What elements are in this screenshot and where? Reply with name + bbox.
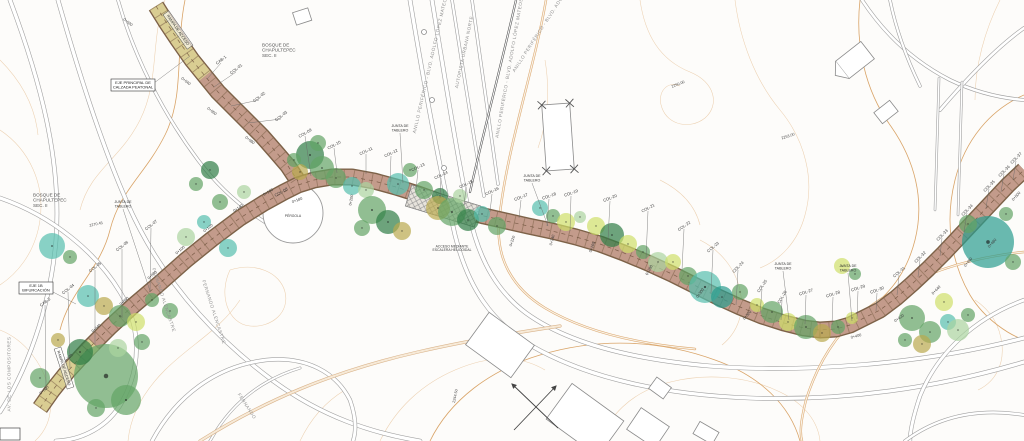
tree-center-dot [141, 341, 142, 342]
label-box-cut [0, 428, 20, 440]
tree-center-dot [293, 159, 294, 160]
building [693, 421, 719, 441]
boxed-axis-label-text: EJE PRINCIPAL DECALZADA PEATONAL [113, 80, 154, 90]
contour-elevation-label-text: 2270.45 [89, 221, 103, 228]
column-label: COL-02 [252, 90, 267, 103]
access-ramp-top [156, 6, 205, 76]
tree-center-dot [195, 183, 196, 184]
deck-joint-label: JUNTA DETABLERO [839, 264, 857, 272]
deck-joint-label-text: JUNTA DETABLERO [114, 200, 132, 208]
tree-center-dot [704, 286, 706, 288]
street-line-inner [958, 82, 962, 215]
station-label-text: 0+440 [930, 284, 942, 296]
column-label: COL-21 [640, 202, 656, 213]
tree-center-dot [467, 219, 469, 221]
column-label-text: COL-13 [410, 161, 426, 172]
column-label: COL-12 [383, 147, 399, 158]
building [627, 408, 670, 441]
column-label-text: COL-11 [359, 145, 374, 156]
tree-center-dot [317, 142, 318, 143]
deck-joint-label-text: JUNTA DETABLERO [523, 174, 541, 182]
tree-center-dot [309, 154, 311, 156]
column-label: COL-11 [359, 145, 374, 156]
contour-elevation-label: 2250.00 [671, 80, 685, 89]
column-label: COL-27 [798, 287, 814, 296]
tree-center-dot [756, 304, 757, 305]
tree-center-dot [117, 347, 118, 348]
deck-joint-label: JUNTA DETABLERO [114, 200, 132, 208]
annotation-label: ACCESO MEDIANTEESCALERA HELICOIDAL [432, 244, 471, 252]
boxed-axis-label: EJE PRINCIPAL DECALZADA PEATONAL [111, 79, 155, 91]
tree-center-dot [459, 195, 460, 196]
plan-drawing-svg: CAB-1COL-01COL-02COL-03CAB-2COL-04COL-05… [0, 0, 1024, 441]
column-label: COL-23 [706, 240, 721, 254]
column-label: COL-37 [1009, 151, 1023, 165]
street-line-inner [210, 368, 300, 441]
tree-center-dot [321, 167, 323, 169]
building [546, 383, 624, 441]
street-name-label-text: ANILLO PERIFÉRICO - BLVD. ADOLFO LÓPEZ M… [511, 0, 593, 73]
tree-center-dot [103, 305, 104, 306]
tree-center-dot [771, 311, 773, 313]
column-label: COL-24 [731, 260, 745, 274]
column-label: COL-03 [274, 109, 289, 122]
tree-center-dot [401, 230, 402, 231]
survey-cross-arrows [512, 384, 558, 430]
tree-center-dot [911, 317, 913, 319]
tree-center-dot [203, 221, 204, 222]
tree-center-dot [943, 301, 944, 302]
contour-elevation-label-text: 2250.00 [671, 80, 685, 89]
tree-center-dot [95, 407, 96, 408]
column-label: COL-07 [144, 218, 159, 231]
tree-center-dot [947, 321, 948, 322]
tree-center-dot [151, 299, 152, 300]
tree-center-dot [79, 351, 81, 353]
tree-center-dot [565, 221, 566, 222]
column-label-text: COL-04 [61, 282, 76, 295]
park-name-label-text: BOSQUE DECHAPULTEPECSEC. II [33, 192, 67, 208]
leader-line [519, 200, 521, 218]
building [293, 8, 312, 25]
street-name-label: ANILLO PERIFÉRICO - BLVD. ADOLFO LÓPEZ M… [511, 0, 593, 73]
structure-with-x-corners [537, 99, 578, 175]
tree-center-dot [1012, 261, 1013, 262]
annotation-label-text: PÉRGOLA [285, 213, 302, 218]
tree-center-dot [627, 243, 628, 244]
column-label: COL-01 [229, 62, 244, 75]
deck-joint-label-text: JUNTA DETABLERO [774, 262, 792, 270]
column-label-text: COL-18 [541, 191, 557, 201]
station-label-text: 0+060 [206, 106, 218, 117]
tree-center-dot [805, 326, 807, 328]
column-label-text: COL-12 [383, 147, 399, 158]
tree-center-dot [957, 329, 959, 331]
tree-center-dot [739, 291, 740, 292]
deck-joint-label-text: JUNTA DETABLERO [391, 124, 409, 132]
deck-joint-label: JUNTA DETABLERO [391, 124, 409, 132]
contour-elevation-label: 2253.00 [781, 132, 795, 140]
station-label: 0+040 [180, 76, 192, 87]
column-label-text: COL-02 [252, 90, 267, 103]
column-label-text: COL-24 [731, 260, 745, 274]
column-label: COL-28 [825, 289, 841, 298]
tree-center-dot [595, 225, 596, 226]
column-label: COL-17 [513, 192, 529, 202]
annotation-label-text: ACCESO MEDIANTEESCALERA HELICOIDAL [432, 244, 471, 252]
tree-center-dot [219, 201, 220, 202]
tree-center-dot [57, 339, 58, 340]
column-label-text: COL-03 [274, 109, 289, 122]
tree-center-dot [209, 169, 210, 170]
column-label-text: COL-07 [144, 218, 159, 231]
column-label-text: COL-25 [756, 278, 769, 293]
column-label-text: COL-17 [513, 192, 529, 202]
street-line [905, 412, 1024, 441]
boxed-axis-label: EJE 1BBIFURCACIÓN [19, 282, 53, 294]
column-label-text: COL-16 [484, 185, 500, 196]
tree-center-dot [243, 191, 244, 192]
tree-center-dot [552, 215, 553, 216]
tree-center-dot [185, 236, 186, 237]
tree-center-dot [39, 377, 40, 378]
column-label: COL-06 [115, 239, 130, 252]
tree-center-dot [929, 331, 931, 333]
tree-center-dot [125, 399, 127, 401]
column-label: COL-29 [850, 283, 866, 292]
street-line-inner [935, 78, 939, 210]
tree-center-dot [967, 314, 968, 315]
column-label-text: COL-06 [115, 239, 130, 252]
tree-center-dot [579, 216, 580, 217]
deck-joint-label: JUNTA DETABLERO [523, 174, 541, 182]
tree-center-dot [904, 339, 905, 340]
column-label: COL-22 [677, 219, 692, 232]
column-label: CAB-1 [215, 54, 228, 66]
column-label-text: CAB-1 [215, 54, 228, 66]
tree-center-dot [69, 256, 70, 257]
tree-center-dot [481, 213, 482, 214]
tree-center-dot [371, 209, 373, 211]
street-line [210, 368, 300, 441]
park-name-label: BOSQUE DECHAPULTEPECSEC. II [262, 42, 296, 58]
contour-elevation-label: 2244.50 [452, 389, 459, 403]
tree-center-dot [687, 275, 688, 276]
column-label: COL-18 [541, 191, 557, 201]
tree-center-dot [611, 234, 613, 236]
tree-center-dot [657, 261, 658, 262]
tree-center-dot [821, 332, 822, 333]
tree-center-dot [51, 245, 53, 247]
tree-center-dot [335, 177, 336, 178]
tree-center-dot [854, 273, 855, 274]
tree-center-dot [1005, 213, 1006, 214]
contour-elevation-label: 2270.45 [89, 221, 103, 228]
tree-center-dot [361, 227, 362, 228]
column-label: COL-16 [484, 185, 500, 196]
annotation-label: PÉRGOLA [285, 213, 302, 218]
column-label: COL-30 [869, 285, 885, 295]
station-label-text: 0+200 [347, 193, 354, 205]
tree-center-dot [496, 225, 497, 226]
tree-center-dot [967, 223, 968, 224]
tree-center-dot [135, 321, 136, 322]
column-label: COL-13 [410, 161, 426, 172]
column-label: COL-25 [756, 278, 769, 293]
building [649, 377, 672, 399]
street-name-label: FERNANDO ALENCASTRE [201, 279, 226, 344]
station-label: 0+200 [347, 193, 354, 205]
tree-center-dot [672, 261, 673, 262]
column-label-text: COL-23 [706, 240, 721, 254]
column-label: COL-20 [602, 193, 618, 203]
tree-center-dot [351, 185, 352, 186]
site-plan-frame: CAB-1COL-01COL-02COL-03CAB-2COL-04COL-05… [0, 0, 1024, 441]
station-label: 0+060 [206, 106, 218, 117]
column-label: COL-19 [563, 188, 579, 198]
street-name-label: AV. DE LOS COMPOSITORES [7, 337, 12, 412]
column-label-text: COL-01 [229, 62, 244, 75]
tree-center-dot [721, 296, 723, 298]
tree-center-dot [837, 326, 838, 327]
tree-center-dot [227, 247, 228, 248]
column-label-text: COL-20 [602, 193, 618, 203]
tree-center-dot [642, 251, 643, 252]
street-name-label-text: FERNANDO ALENCASTRE [201, 279, 226, 344]
building [466, 312, 535, 377]
tree-center-dot [104, 374, 108, 378]
column-label-text: COL-21 [640, 202, 656, 213]
station-label: 0+220 [508, 234, 516, 247]
tree-center-dot [787, 321, 788, 322]
tree-center-dot [87, 295, 89, 297]
tree-center-dot [397, 183, 399, 185]
station-label: 0+440 [930, 284, 942, 296]
column-label-text: COL-27 [798, 287, 814, 296]
station-label-text: 0+220 [508, 234, 516, 247]
contour-elevation-label-text: 2253.00 [781, 132, 795, 140]
column-label-text: COL-30 [869, 285, 885, 295]
column-label: COL-04 [61, 282, 76, 295]
column-label-text: COL-22 [677, 219, 692, 232]
building [829, 41, 875, 84]
tree-center-dot [921, 343, 922, 344]
leader-line [682, 229, 684, 270]
deck-joint-label: JUNTA DETABLERO [774, 262, 792, 270]
tree-center-dot [365, 189, 366, 190]
tree-center-dot [119, 315, 121, 317]
tree-center-dot [539, 207, 540, 208]
column-label-text: COL-28 [825, 289, 841, 298]
park-name-label: BOSQUE DECHAPULTEPECSEC. II [33, 192, 67, 208]
street-name-label-text: AV. DE LOS COMPOSITORES [7, 337, 12, 412]
column-label-text: COL-29 [850, 283, 866, 292]
column-label-text: COL-19 [563, 188, 579, 198]
deck-joint-label-text: JUNTA DETABLERO [839, 264, 857, 272]
tree-center-dot [299, 171, 300, 172]
park-name-label-text: BOSQUE DECHAPULTEPECSEC. II [262, 42, 296, 58]
tree-center-dot [451, 211, 453, 213]
contour-elevation-label-text: 2244.50 [452, 389, 459, 403]
column-label-text: COL-37 [1009, 151, 1023, 165]
station-label-text: 0+040 [180, 76, 192, 87]
street-line [890, 0, 920, 86]
street-line-inner [152, 359, 355, 441]
tree-center-dot [387, 221, 389, 223]
tree-center-dot [423, 189, 424, 190]
